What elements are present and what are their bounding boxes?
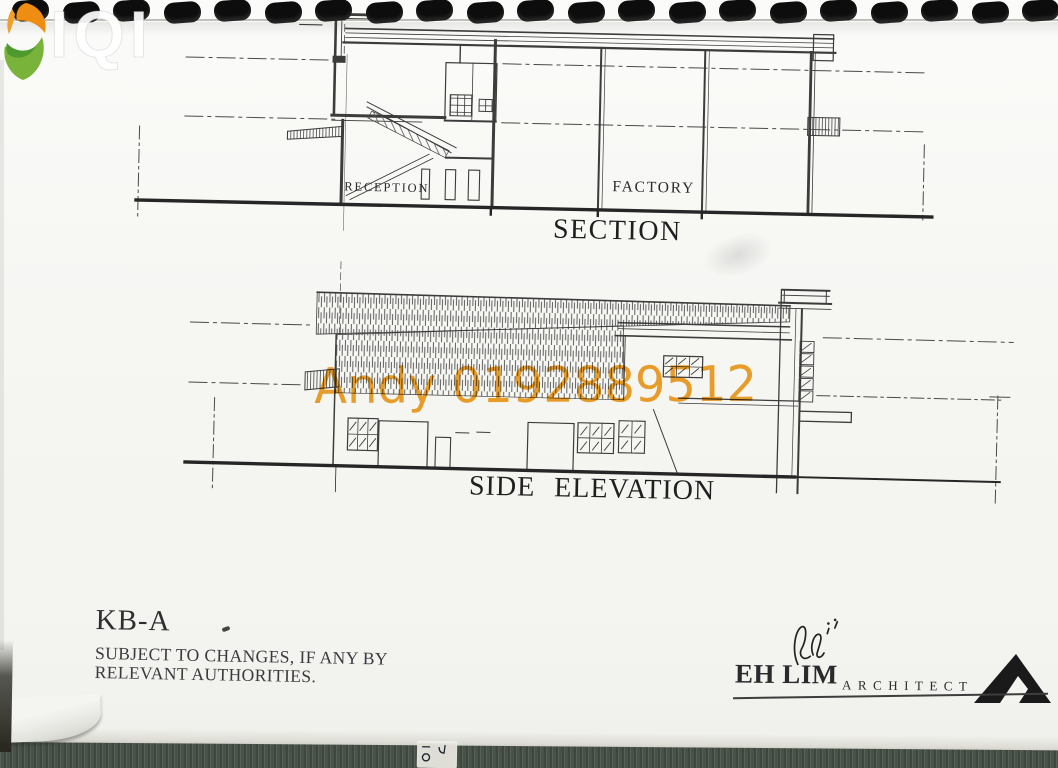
binding-ring: [163, 1, 201, 25]
section-canopy: [287, 125, 342, 140]
tab-ink-marks: [417, 741, 453, 766]
elevation-window-1: [347, 418, 378, 451]
section-doors: [421, 169, 480, 200]
binding-ring: [264, 1, 302, 25]
binding-ring: [415, 0, 453, 22]
elevation-window-3: [618, 421, 645, 454]
elevation-roller-door-1: [378, 421, 428, 468]
page-edge-shadow: [0, 640, 13, 752]
elevation-door-small-1: [435, 437, 451, 468]
page-tab: [417, 741, 457, 768]
binding-ring: [314, 0, 352, 22]
binding-ring: [718, 0, 756, 22]
binding-ring: [365, 1, 403, 25]
binding-ring: [466, 1, 504, 25]
elevation-wall-marks: [456, 432, 490, 434]
binding-ring: [1021, 0, 1058, 22]
elevation-ground-line: [184, 462, 999, 508]
section-stairwell: [443, 40, 498, 208]
factory-label: FACTORY: [612, 178, 695, 197]
section-right-wall: [806, 34, 842, 215]
binding-ring: [819, 0, 857, 22]
binding-ring: [567, 1, 605, 25]
binding-ring: [971, 1, 1009, 25]
binding-strip: [0, 0, 1058, 34]
scanned-drawing-page: IQI: [0, 0, 1058, 768]
elevation-roller-door-2: [527, 422, 574, 471]
architect-logo-icon: [972, 648, 1052, 706]
iqi-logo: [0, 1, 52, 85]
watermark-text: Andy 0192889512: [314, 356, 757, 415]
signature: [784, 613, 864, 671]
section-drawing: RECEPTION FACTORY: [135, 0, 936, 243]
binding-ring: [516, 0, 554, 22]
reception-label: RECEPTION: [344, 179, 429, 195]
binding-ring: [668, 1, 706, 25]
binding-ring: [617, 0, 655, 22]
binding-ring: [213, 0, 251, 22]
logo-ghost-text: IQI: [50, 0, 153, 72]
binding-ring: [920, 0, 958, 22]
binding-ring: [870, 1, 908, 25]
elevation-window-2: [577, 423, 614, 454]
binding-ring: [769, 1, 807, 25]
